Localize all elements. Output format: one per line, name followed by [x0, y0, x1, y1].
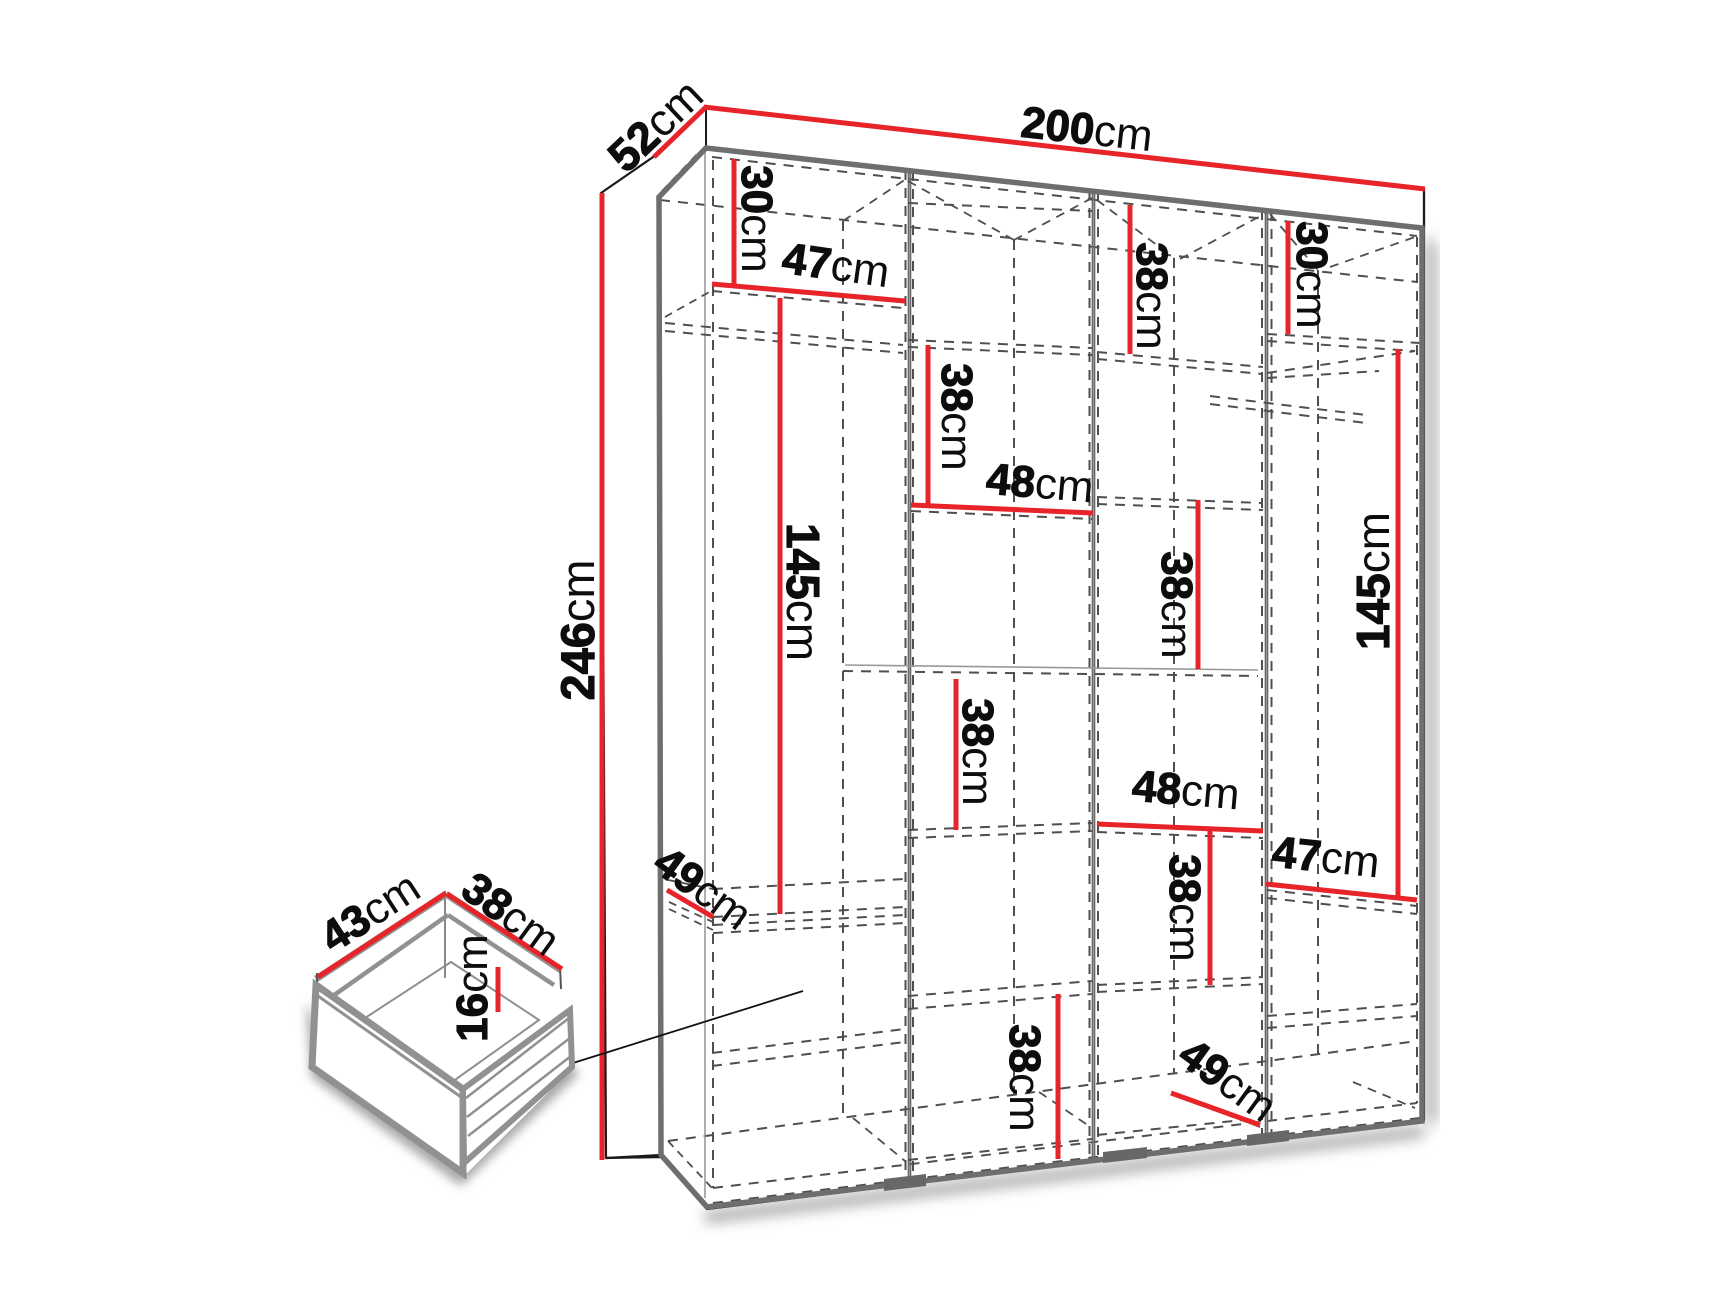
svg-text:145cm: 145cm: [1347, 512, 1399, 650]
svg-text:16cm: 16cm: [448, 934, 497, 1042]
svg-text:38cm: 38cm: [1001, 1024, 1050, 1132]
svg-text:246cm: 246cm: [551, 559, 604, 700]
svg-text:38cm: 38cm: [1128, 242, 1177, 350]
svg-text:38cm: 38cm: [933, 363, 982, 471]
svg-text:38cm: 38cm: [1153, 551, 1202, 659]
svg-text:48cm: 48cm: [984, 454, 1095, 512]
svg-text:38cm: 38cm: [954, 698, 1003, 806]
svg-text:38cm: 38cm: [1161, 854, 1210, 962]
svg-text:145cm: 145cm: [777, 523, 829, 661]
svg-text:48cm: 48cm: [1130, 761, 1241, 819]
svg-text:30cm: 30cm: [1288, 221, 1337, 329]
svg-text:30cm: 30cm: [733, 165, 782, 273]
